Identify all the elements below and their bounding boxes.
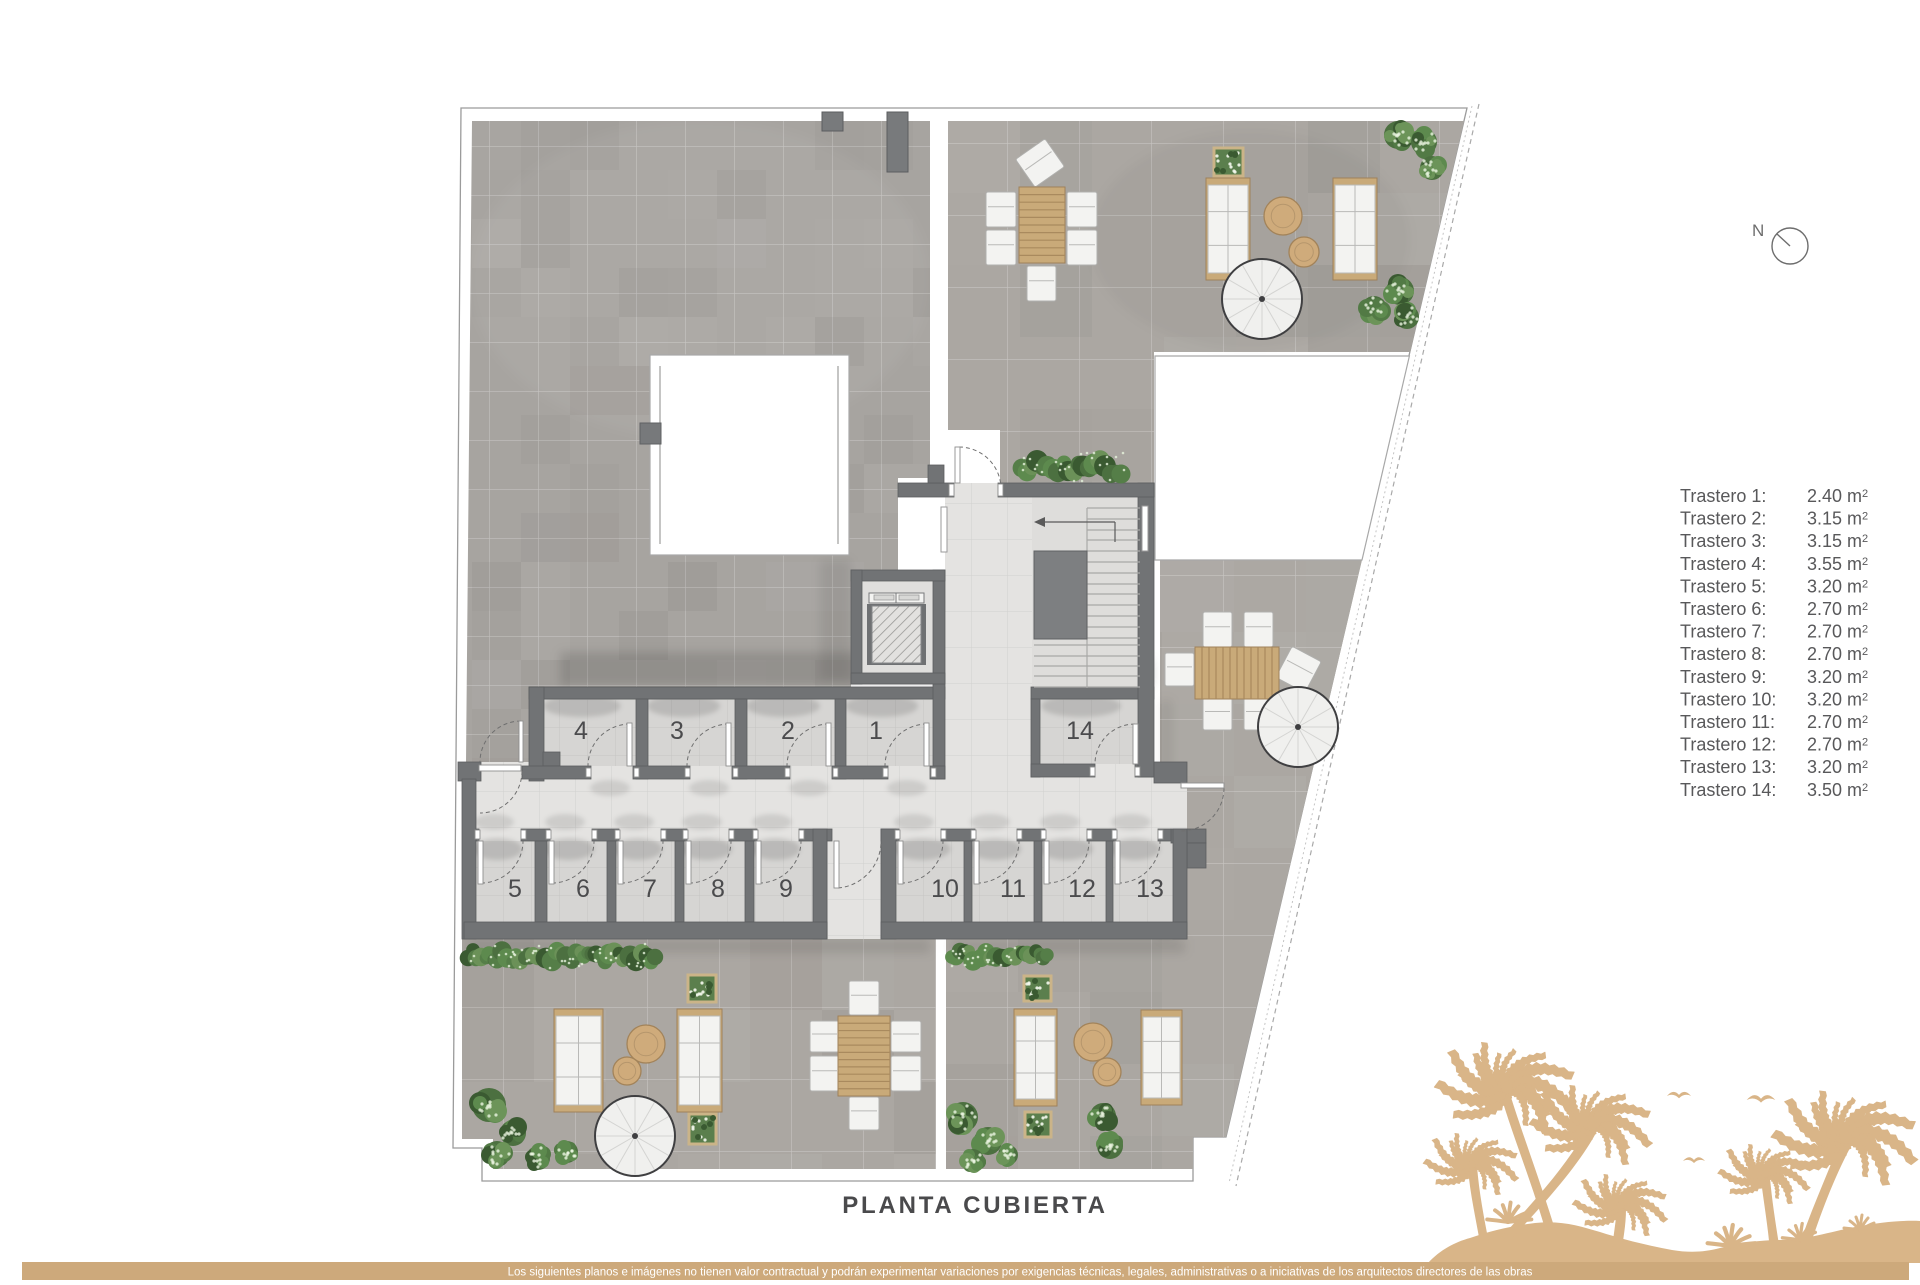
svg-text:Trastero 13:: Trastero 13:	[1680, 757, 1776, 777]
svg-text:3.20 m2: 3.20 m2	[1807, 757, 1868, 777]
svg-text:7: 7	[643, 875, 657, 903]
svg-text:3.20 m2: 3.20 m2	[1807, 689, 1868, 709]
svg-text:6: 6	[576, 875, 590, 903]
svg-text:2.70 m2: 2.70 m2	[1807, 644, 1868, 664]
svg-text:Trastero 2:: Trastero 2:	[1680, 509, 1766, 529]
svg-text:3.20 m2: 3.20 m2	[1807, 576, 1868, 596]
svg-text:Trastero 4:: Trastero 4:	[1680, 554, 1766, 574]
svg-text:N: N	[1752, 221, 1764, 240]
svg-text:2.70 m2: 2.70 m2	[1807, 599, 1868, 619]
svg-text:8: 8	[711, 875, 725, 903]
svg-text:14: 14	[1066, 717, 1094, 745]
svg-text:5: 5	[508, 875, 522, 903]
svg-text:3.20 m2: 3.20 m2	[1807, 667, 1868, 687]
svg-text:3.15 m2: 3.15 m2	[1807, 531, 1868, 551]
svg-text:Trastero 12:: Trastero 12:	[1680, 735, 1776, 755]
svg-text:Trastero 9:: Trastero 9:	[1680, 667, 1766, 687]
svg-text:11: 11	[1000, 875, 1026, 903]
svg-text:2.70 m2: 2.70 m2	[1807, 622, 1868, 642]
svg-text:3.15 m2: 3.15 m2	[1807, 509, 1868, 529]
svg-text:Los siguientes planos e imágen: Los siguientes planos e imágenes no tien…	[508, 1267, 1533, 1279]
svg-text:Trastero 10:: Trastero 10:	[1680, 689, 1776, 709]
svg-text:1: 1	[869, 717, 883, 745]
svg-text:Trastero 6:: Trastero 6:	[1680, 599, 1766, 619]
svg-text:Trastero 3:: Trastero 3:	[1680, 531, 1766, 551]
svg-text:3.55 m2: 3.55 m2	[1807, 554, 1868, 574]
svg-text:9: 9	[779, 875, 793, 903]
svg-text:13: 13	[1136, 875, 1164, 903]
svg-text:3: 3	[670, 717, 684, 745]
svg-text:12: 12	[1068, 875, 1096, 903]
svg-text:PLANTA CUBIERTA: PLANTA CUBIERTA	[842, 1192, 1108, 1219]
svg-text:Trastero 8:: Trastero 8:	[1680, 644, 1766, 664]
svg-text:3.50 m2: 3.50 m2	[1807, 780, 1868, 800]
svg-text:Trastero 11:: Trastero 11:	[1680, 712, 1775, 732]
svg-text:2.70 m2: 2.70 m2	[1807, 712, 1868, 732]
svg-text:Trastero 14:: Trastero 14:	[1680, 780, 1776, 800]
svg-text:Trastero 1:: Trastero 1:	[1680, 486, 1766, 506]
svg-text:2.70 m2: 2.70 m2	[1807, 735, 1868, 755]
svg-text:10: 10	[931, 875, 959, 903]
svg-text:2.40 m2: 2.40 m2	[1807, 486, 1868, 506]
svg-text:4: 4	[574, 717, 588, 745]
svg-text:2: 2	[781, 717, 795, 745]
svg-text:Trastero 7:: Trastero 7:	[1680, 622, 1766, 642]
svg-text:Trastero 5:: Trastero 5:	[1680, 576, 1766, 596]
